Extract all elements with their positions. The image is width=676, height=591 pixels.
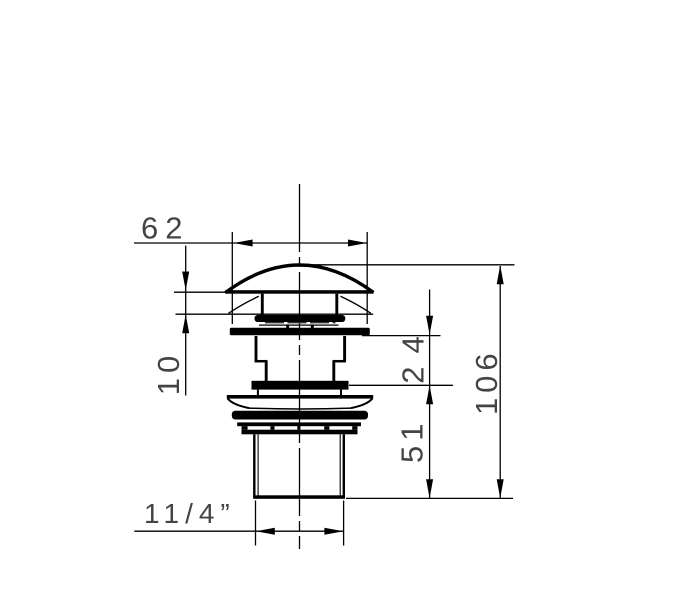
- svg-text:106: 106: [469, 348, 504, 415]
- svg-text:51: 51: [395, 419, 430, 463]
- svg-text:10: 10: [151, 351, 186, 395]
- svg-text:11/4”: 11/4”: [144, 498, 236, 529]
- svg-text:24: 24: [396, 323, 431, 383]
- svg-text:62: 62: [141, 211, 189, 246]
